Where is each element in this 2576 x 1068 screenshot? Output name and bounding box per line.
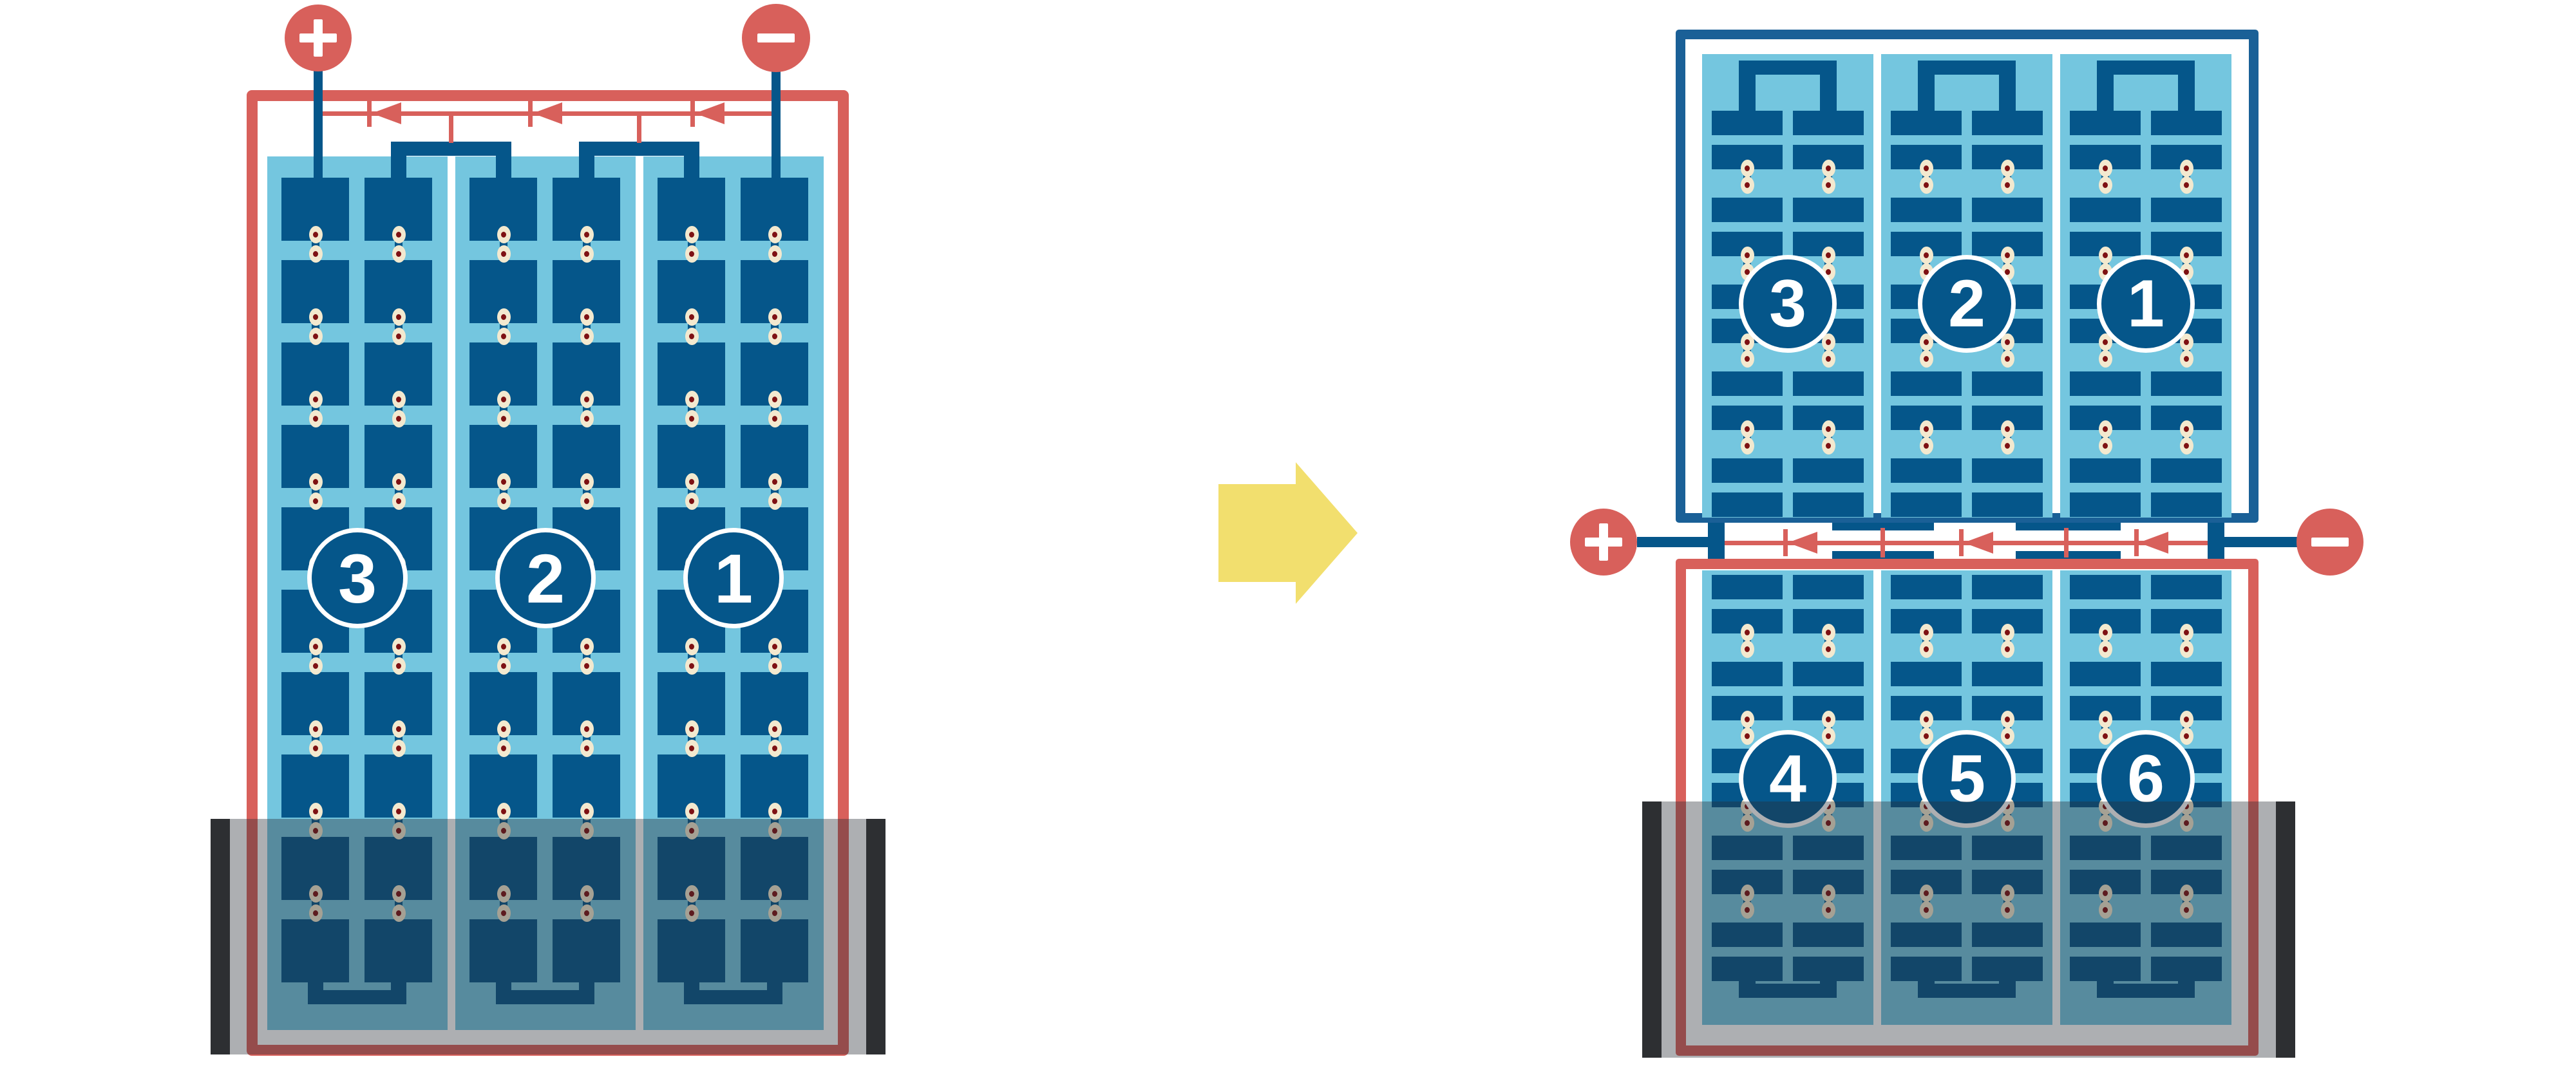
cell-connector-dot-center	[689, 314, 694, 320]
solar-cell	[2151, 662, 2222, 686]
solar-cell	[1972, 492, 2043, 517]
cell-connector-dot-center	[396, 726, 401, 732]
cell-connector-dot-center	[396, 745, 401, 751]
solar-cell	[2070, 371, 2141, 396]
cell-connector-dot-center	[2184, 733, 2189, 739]
cell-connector-dot	[2099, 350, 2112, 368]
cell-connector-dot	[768, 803, 782, 820]
cell-connector-dot	[1741, 420, 1754, 438]
plus-icon	[1599, 523, 1608, 561]
cell-connector-dot-center	[772, 726, 777, 732]
cell-connector-dot	[392, 657, 406, 675]
cell-connector-dot	[2180, 350, 2193, 368]
cell-connector-dot-center	[772, 809, 777, 814]
cell-connector-dot	[309, 473, 323, 491]
cell-connector-dot	[497, 328, 511, 345]
cell-connector-dot-center	[396, 314, 401, 320]
cell-connector-dot-center	[1826, 630, 1831, 635]
cell-connector-dot	[685, 657, 699, 675]
cell-connector-dot	[497, 245, 511, 263]
cell-connector-dot-center	[2184, 165, 2189, 171]
cell-connector-dot	[392, 740, 406, 757]
cell-connector-dot	[2180, 160, 2193, 177]
minus-icon	[2311, 538, 2349, 547]
solar-cell	[1793, 662, 1864, 686]
cell-connector-dot	[309, 803, 323, 820]
cell-connector-dot	[497, 410, 511, 427]
cell-connector-dot-center	[2184, 339, 2189, 345]
cell-connector-dot	[2099, 711, 2112, 728]
cell-connector-dot-center	[689, 809, 694, 814]
cell-connector-dot	[768, 328, 782, 345]
cell-connector-dot-center	[2103, 443, 2108, 449]
cell-connector-dot	[392, 245, 406, 263]
cell-connector-dot-center	[501, 479, 506, 485]
cell-connector-dot-center	[772, 498, 777, 504]
cell-connector-dot-center	[689, 397, 694, 402]
cell-connector-dot-center	[501, 809, 506, 814]
solar-cell	[1793, 198, 1864, 222]
cell-connector-dot-center	[584, 726, 589, 732]
cell-connector-dot-center	[772, 663, 777, 669]
cell-connector-dot-center	[501, 498, 506, 504]
cell-connector-dot	[1920, 727, 1933, 745]
solar-cell	[1793, 371, 1864, 396]
cell-connector-dot	[580, 391, 594, 408]
cell-connector-dot	[768, 410, 782, 427]
cell-connector-dot-center	[2184, 443, 2189, 449]
cell-connector-dot	[1920, 420, 1933, 438]
cell-connector-dot-center	[396, 498, 401, 504]
cell-connector-dot-center	[1924, 165, 1929, 171]
solar-cell	[1712, 575, 1783, 599]
cell-connector-dot	[2099, 437, 2112, 454]
solar-cell	[1972, 575, 2043, 599]
cell-connector-dot-center	[772, 333, 777, 339]
cell-connector-dot-center	[689, 251, 694, 257]
cell-connector-dot-center	[501, 663, 506, 669]
cell-connector-dot	[580, 638, 594, 655]
cell-connector-dot-center	[2103, 717, 2108, 722]
cell-connector-dot	[685, 473, 699, 491]
solar-cell	[1712, 492, 1783, 517]
cell-connector-dot	[1822, 160, 1835, 177]
cell-connector-dot-center	[772, 479, 777, 485]
string-bridge-wire	[2097, 61, 2114, 115]
cell-connector-dot	[768, 740, 782, 757]
cell-connector-dot-center	[689, 498, 694, 504]
cell-connector-dot-center	[1826, 165, 1831, 171]
cell-connector-dot-center	[2005, 630, 2010, 635]
solar-cell	[1891, 111, 1962, 135]
cell-connector-dot-center	[501, 333, 506, 339]
bypass-diode-icon	[695, 102, 724, 124]
cell-connector-dot	[309, 720, 323, 738]
cell-connector-dot	[2001, 350, 2014, 368]
cell-connector-dot	[1920, 641, 1933, 658]
cell-connector-dot	[1741, 727, 1754, 745]
cell-connector-dot	[392, 308, 406, 326]
solar-module-wiring-diagram: 321 321456	[0, 0, 2576, 1068]
cell-connector-dot-center	[313, 314, 318, 320]
cell-connector-dot	[2180, 176, 2193, 194]
cell-connector-dot	[497, 740, 511, 757]
cell-connector-dot	[2180, 437, 2193, 454]
bypass-diode-icon	[1964, 532, 1993, 554]
cell-connector-dot	[2180, 247, 2193, 264]
cell-connector-dot-center	[584, 479, 589, 485]
cell-connector-dot-center	[1924, 733, 1929, 739]
cell-connector-dot	[309, 657, 323, 675]
shade-edge-bar	[866, 819, 885, 1054]
shade-edge-bar	[1642, 801, 1662, 1058]
solar-cell	[1891, 458, 1962, 483]
cell-connector-dot-center	[313, 232, 318, 238]
cell-connector-dot-center	[1745, 356, 1750, 362]
cell-connector-dot-center	[584, 397, 589, 402]
cell-connector-dot	[2001, 247, 2014, 264]
cell-connector-dot	[2001, 641, 2014, 658]
cell-connector-dot-center	[1745, 182, 1750, 188]
cell-connector-dot-center	[396, 663, 401, 669]
string-number-badge: 2	[1918, 255, 2016, 353]
cell-connector-dot-center	[2005, 252, 2010, 258]
solar-cell	[2070, 198, 2141, 222]
cell-connector-dot	[1822, 711, 1835, 728]
cell-connector-dot	[768, 720, 782, 738]
cell-connector-dot-center	[2103, 165, 2108, 171]
cell-connector-dot-center	[2184, 182, 2189, 188]
cell-connector-dot-center	[584, 416, 589, 422]
cell-connector-dot-center	[584, 232, 589, 238]
cell-connector-dot	[1920, 247, 1933, 264]
cell-connector-dot	[1920, 350, 1933, 368]
cell-connector-dot-center	[1745, 252, 1750, 258]
cell-connector-dot-center	[313, 397, 318, 402]
cell-connector-dot-center	[772, 251, 777, 257]
bypass-diode-icon	[367, 100, 372, 127]
solar-cell	[2151, 575, 2222, 599]
cell-connector-dot	[2099, 160, 2112, 177]
cell-connector-dot	[2001, 727, 2014, 745]
cell-connector-dot	[497, 473, 511, 491]
cell-connector-dot	[580, 657, 594, 675]
cell-connector-dot-center	[1745, 426, 1750, 432]
cell-connector-dot-center	[1826, 182, 1831, 188]
string-bridge-wire	[1999, 61, 2016, 115]
cell-connector-dot	[309, 638, 323, 655]
cell-connector-dot	[392, 473, 406, 491]
cell-connector-dot	[685, 391, 699, 408]
cell-connector-dot	[768, 638, 782, 655]
cell-connector-dot	[2001, 624, 2014, 641]
cell-connector-dot-center	[313, 416, 318, 422]
cell-connector-dot	[580, 492, 594, 510]
cell-connector-dot-center	[313, 809, 318, 814]
cell-connector-dot-center	[1924, 356, 1929, 362]
cell-connector-dot	[309, 308, 323, 326]
cell-connector-dot-center	[584, 644, 589, 650]
cell-connector-dot-center	[1826, 646, 1831, 652]
cell-connector-dot-center	[1745, 646, 1750, 652]
cell-connector-dot	[1741, 437, 1754, 454]
cell-connector-dot	[685, 410, 699, 427]
cell-connector-dot-center	[501, 397, 506, 402]
cell-connector-dot-center	[396, 809, 401, 814]
bypass-diode-icon	[1959, 529, 1964, 556]
cell-connector-dot	[685, 492, 699, 510]
cell-connector-dot	[768, 391, 782, 408]
cell-connector-dot-center	[396, 644, 401, 650]
cell-connector-dot	[309, 245, 323, 263]
cell-connector-dot	[2099, 624, 2112, 641]
bypass-diode-icon	[533, 102, 562, 124]
cell-connector-dot-center	[584, 663, 589, 669]
cell-connector-dot-center	[2103, 252, 2108, 258]
cell-connector-dot-center	[1826, 339, 1831, 345]
string-number-badge: 3	[1739, 255, 1837, 353]
cell-connector-dot	[768, 245, 782, 263]
solar-cell	[2151, 371, 2222, 396]
solar-cell	[1891, 371, 1962, 396]
cell-connector-dot-center	[1924, 339, 1929, 345]
cell-connector-dot-center	[2103, 182, 2108, 188]
solar-cell	[2070, 492, 2141, 517]
string-number-badge: 2	[495, 528, 596, 628]
cell-connector-dot-center	[2005, 182, 2010, 188]
cell-connector-dot	[392, 803, 406, 820]
cell-connector-dot-center	[2103, 426, 2108, 432]
cell-connector-dot-center	[2103, 339, 2108, 345]
solar-cell	[2070, 111, 2141, 135]
solar-cell	[1793, 575, 1864, 599]
minus-icon	[757, 33, 795, 42]
cell-connector-dot-center	[2103, 356, 2108, 362]
cell-connector-dot	[2180, 641, 2193, 658]
string-bridge-wire	[1739, 61, 1756, 115]
cell-connector-dot	[580, 473, 594, 491]
cell-connector-dot	[768, 657, 782, 675]
cell-connector-dot	[497, 492, 511, 510]
cell-connector-dot	[580, 226, 594, 243]
cell-connector-dot	[685, 245, 699, 263]
cell-connector-dot	[497, 720, 511, 738]
cell-connector-dot-center	[313, 479, 318, 485]
solar-cell	[1712, 198, 1783, 222]
cell-connector-dot	[309, 328, 323, 345]
solar-cell	[1891, 492, 1962, 517]
negative-terminal	[2297, 509, 2363, 576]
cell-connector-dot-center	[689, 663, 694, 669]
cell-connector-dot	[497, 226, 511, 243]
cell-connector-dot-center	[1826, 443, 1831, 449]
cell-connector-dot-center	[2005, 426, 2010, 432]
string-bridge-wire	[579, 142, 594, 180]
junction-side-wire	[2208, 523, 2224, 559]
solar-cell	[1972, 371, 2043, 396]
cell-connector-dot	[685, 720, 699, 738]
cell-connector-dot	[2180, 420, 2193, 438]
solar-cell	[1891, 575, 1962, 599]
cell-connector-dot-center	[2005, 717, 2010, 722]
cell-connector-dot-center	[689, 745, 694, 751]
cell-connector-dot-center	[1745, 443, 1750, 449]
cell-connector-dot-center	[1745, 717, 1750, 722]
negative-terminal	[742, 4, 810, 72]
cell-connector-dot	[497, 308, 511, 326]
cell-connector-dot	[2099, 420, 2112, 438]
solar-cell	[1712, 662, 1783, 686]
cell-connector-dot-center	[313, 663, 318, 669]
cell-connector-dot	[309, 226, 323, 243]
string-number-badge: 3	[307, 528, 408, 628]
cell-connector-dot-center	[396, 251, 401, 257]
solar-cell	[2070, 575, 2141, 599]
cell-connector-dot-center	[584, 333, 589, 339]
cell-connector-dot	[1741, 624, 1754, 641]
cell-connector-dot	[768, 473, 782, 491]
solar-cell	[1712, 111, 1783, 135]
cell-connector-dot	[1741, 176, 1754, 194]
cell-connector-dot-center	[1745, 733, 1750, 739]
cell-connector-dot	[1822, 350, 1835, 368]
cell-connector-dot-center	[313, 333, 318, 339]
cell-connector-dot	[1741, 160, 1754, 177]
cell-connector-dot-center	[2005, 646, 2010, 652]
cell-connector-dot-center	[1745, 339, 1750, 345]
cell-connector-dot-center	[689, 416, 694, 422]
cell-connector-dot-center	[772, 745, 777, 751]
cell-connector-dot-center	[1826, 733, 1831, 739]
cell-connector-dot	[685, 328, 699, 345]
string-bridge-wire	[496, 142, 511, 180]
cell-connector-dot	[580, 720, 594, 738]
cell-connector-dot-center	[1924, 182, 1929, 188]
cell-connector-dot	[2001, 176, 2014, 194]
cell-connector-dot	[1741, 350, 1754, 368]
positive-terminal-wire	[1637, 537, 1709, 547]
cell-connector-dot	[685, 740, 699, 757]
cell-connector-dot-center	[2184, 252, 2189, 258]
cell-connector-dot	[2001, 437, 2014, 454]
cell-connector-dot	[2099, 641, 2112, 658]
cell-connector-dot	[392, 328, 406, 345]
cell-connector-dot-center	[313, 745, 318, 751]
cell-connector-dot-center	[2103, 646, 2108, 652]
cell-connector-dot	[1822, 247, 1835, 264]
bypass-diode-icon	[372, 102, 401, 124]
cell-connector-dot-center	[1924, 630, 1929, 635]
string-bridge-wire	[391, 142, 511, 156]
diode-bus-stub	[637, 116, 641, 143]
positive-terminal	[1570, 509, 1637, 576]
cell-connector-dot-center	[1826, 426, 1831, 432]
positive-terminal-wire	[314, 68, 323, 178]
cell-connector-dot-center	[396, 232, 401, 238]
diode-bus-stub	[2064, 528, 2069, 557]
bypass-diode-icon	[690, 100, 695, 127]
cell-connector-dot	[768, 308, 782, 326]
cell-connector-dot	[768, 226, 782, 243]
cell-connector-dot	[1822, 437, 1835, 454]
positive-terminal	[285, 5, 352, 71]
solar-cell	[1712, 458, 1783, 483]
cell-connector-dot-center	[772, 314, 777, 320]
cell-connector-dot	[2099, 247, 2112, 264]
solar-cell	[2070, 662, 2141, 686]
cell-connector-dot	[309, 410, 323, 427]
cell-connector-dot	[309, 391, 323, 408]
cell-connector-dot-center	[313, 644, 318, 650]
cell-connector-dot-center	[1924, 426, 1929, 432]
cell-connector-dot-center	[1924, 717, 1929, 722]
shade-edge-bar	[211, 819, 230, 1054]
solar-cell	[1793, 458, 1864, 483]
cell-connector-dot-center	[772, 397, 777, 402]
cell-connector-dot	[580, 803, 594, 820]
bypass-diode-icon	[528, 100, 533, 127]
cell-connector-dot-center	[2184, 426, 2189, 432]
cell-connector-dot-center	[501, 416, 506, 422]
cell-connector-dot-center	[2103, 630, 2108, 635]
cell-connector-dot-center	[584, 314, 589, 320]
cell-connector-dot-center	[2005, 339, 2010, 345]
cell-connector-dot-center	[689, 232, 694, 238]
cell-connector-dot	[1822, 176, 1835, 194]
cell-connector-dot	[1920, 176, 1933, 194]
cell-connector-dot	[392, 492, 406, 510]
solar-cell	[2151, 458, 2222, 483]
diode-bus-stub	[449, 116, 453, 143]
bypass-diode-icon	[2134, 529, 2139, 556]
arrow-right-icon	[1218, 462, 1358, 604]
cell-connector-dot-center	[1745, 630, 1750, 635]
cell-connector-dot-center	[501, 745, 506, 751]
cell-connector-dot-center	[1745, 165, 1750, 171]
cell-connector-dot	[1920, 437, 1933, 454]
cell-connector-dot	[497, 391, 511, 408]
cell-connector-dot	[309, 740, 323, 757]
solar-cell	[1793, 111, 1864, 135]
shade-overlay	[1642, 801, 2295, 1058]
solar-cell	[1712, 371, 1783, 396]
solar-cell	[1972, 662, 2043, 686]
cell-connector-dot	[685, 638, 699, 655]
cell-connector-dot-center	[689, 479, 694, 485]
solar-cell	[1891, 662, 1962, 686]
string-bridge-wire	[579, 142, 699, 156]
cell-connector-dot-center	[1924, 443, 1929, 449]
cell-connector-dot	[1741, 711, 1754, 728]
bypass-diode-icon	[2139, 532, 2168, 554]
bypass-diode-icon	[1783, 529, 1788, 556]
cell-connector-dot	[309, 492, 323, 510]
cell-connector-dot	[768, 492, 782, 510]
cell-connector-dot	[1920, 160, 1933, 177]
cell-connector-dot-center	[584, 745, 589, 751]
cell-connector-dot	[2180, 624, 2193, 641]
junction-side-wire	[1708, 523, 1725, 559]
cell-connector-dot-center	[313, 251, 318, 257]
solar-cell	[2151, 111, 2222, 135]
cell-connector-dot	[1822, 624, 1835, 641]
diode-bus-stub	[1880, 528, 1885, 557]
cell-connector-dot	[392, 410, 406, 427]
cell-connector-dot-center	[1826, 252, 1831, 258]
cell-connector-dot-center	[313, 726, 318, 732]
plus-icon	[314, 19, 323, 57]
cell-connector-dot-center	[689, 333, 694, 339]
